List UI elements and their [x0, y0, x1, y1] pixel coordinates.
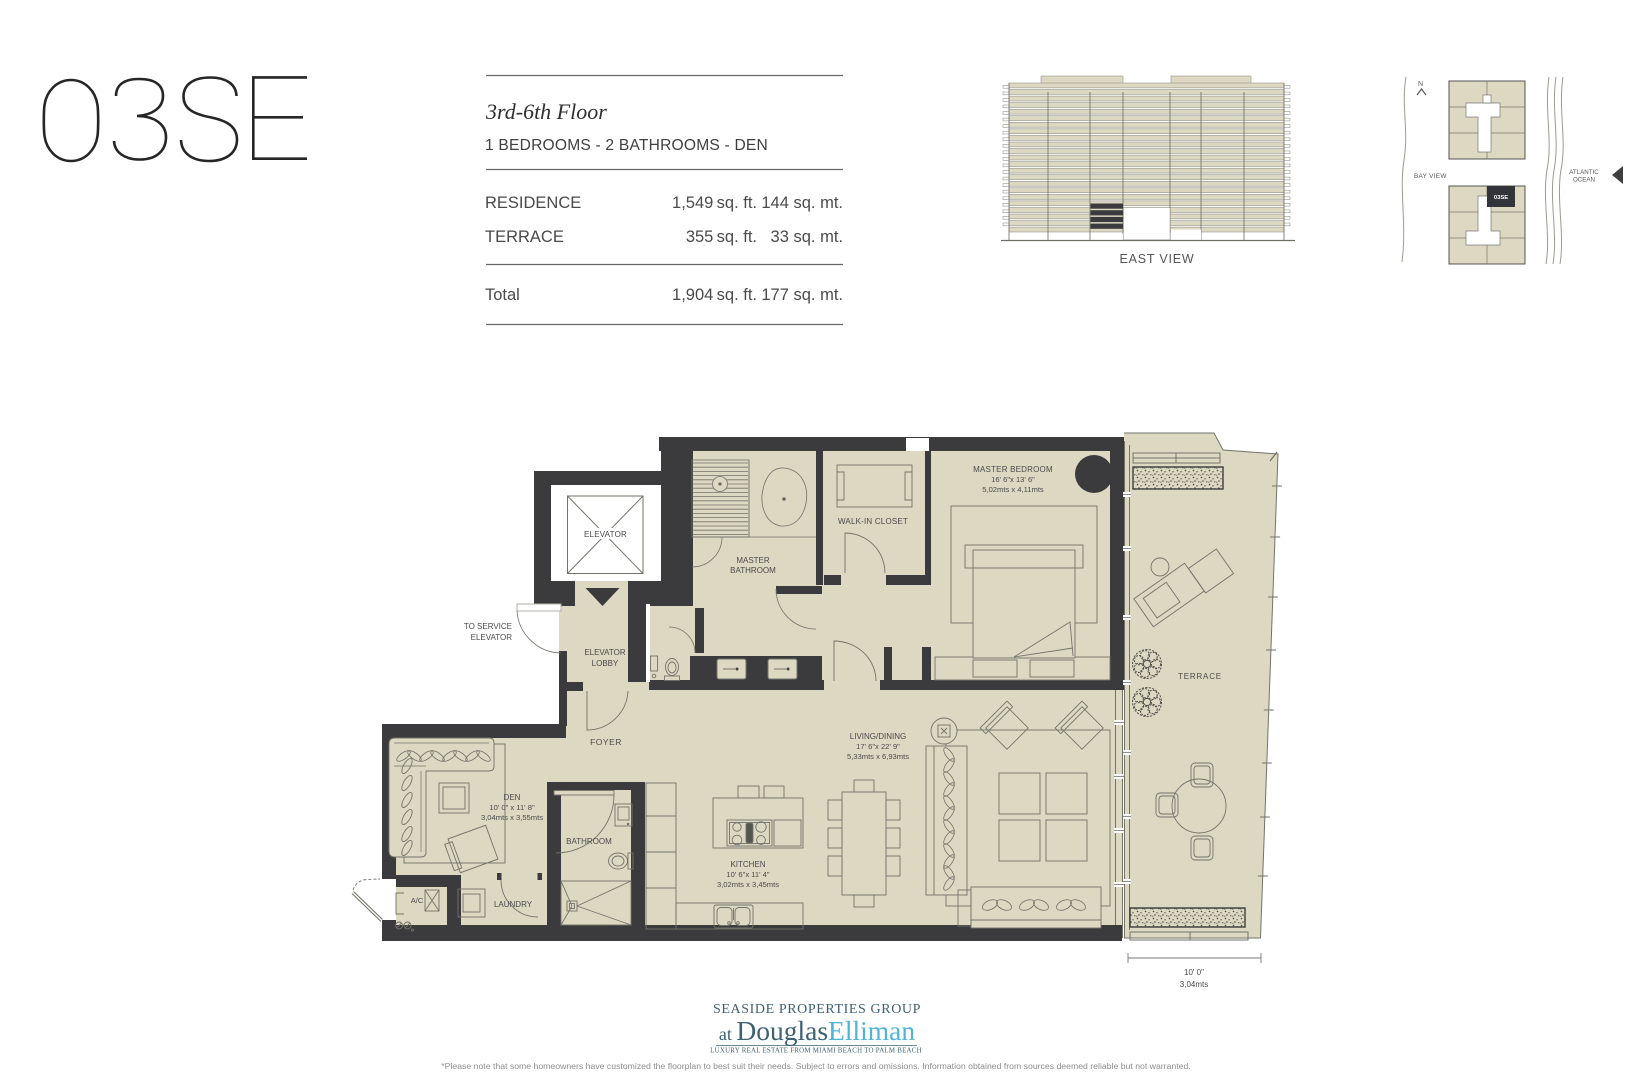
svg-text:10' 0": 10' 0" [1184, 968, 1204, 977]
svg-text:LAUNDRY: LAUNDRY [494, 900, 533, 909]
svg-text:TERRACE: TERRACE [485, 228, 564, 246]
svg-text:1,904 sq. ft.: 1,904 sq. ft. [672, 286, 757, 304]
svg-text:LIVING/DINING: LIVING/DINING [850, 732, 906, 741]
svg-text:BAY VIEW: BAY VIEW [1414, 173, 1447, 180]
svg-text:177 sq. mt.: 177 sq. mt. [761, 286, 843, 304]
svg-text:10' 6"x 11' 4": 10' 6"x 11' 4" [726, 870, 769, 879]
svg-text:17' 6"x 22' 9": 17' 6"x 22' 9" [856, 742, 900, 751]
svg-text:144 sq. mt.: 144 sq. mt. [761, 194, 843, 212]
svg-text:BATHROOM: BATHROOM [730, 566, 776, 575]
svg-text:A/C: A/C [411, 896, 424, 905]
svg-text:5,33mts x 6,93mts: 5,33mts x 6,93mts [847, 752, 909, 761]
svg-text:WALK-IN CLOSET: WALK-IN CLOSET [838, 517, 908, 526]
svg-text:3,04mts x 3,55mts: 3,04mts x 3,55mts [481, 813, 543, 822]
svg-text:FOYER: FOYER [590, 737, 622, 747]
svg-text:MASTER: MASTER [736, 556, 770, 565]
svg-text:ATLANTIC: ATLANTIC [1569, 169, 1599, 176]
svg-text:DEN: DEN [504, 793, 521, 802]
svg-text:MASTER BEDROOM: MASTER BEDROOM [973, 465, 1053, 474]
svg-text:03SE: 03SE [1494, 195, 1508, 201]
svg-text:33 sq. mt.: 33 sq. mt. [771, 228, 843, 246]
svg-text:3rd-6th Floor: 3rd-6th Floor [485, 99, 607, 124]
svg-text:TO SERVICE: TO SERVICE [464, 622, 512, 631]
svg-text:ELEVATOR: ELEVATOR [584, 648, 626, 657]
svg-text:16' 6"x 13' 6": 16' 6"x 13' 6" [991, 475, 1035, 484]
svg-text:LOBBY: LOBBY [592, 659, 619, 668]
svg-text:3,02mts x 3,45mts: 3,02mts x 3,45mts [717, 880, 779, 889]
svg-text:N: N [1418, 81, 1423, 88]
svg-text:TERRACE: TERRACE [1178, 672, 1222, 681]
svg-text:5,02mts x 4,11mts: 5,02mts x 4,11mts [982, 485, 1044, 494]
svg-text:ELEVATOR: ELEVATOR [584, 530, 627, 539]
svg-text:355 sq. ft.: 355 sq. ft. [686, 228, 757, 246]
svg-text:1,549 sq. ft.: 1,549 sq. ft. [672, 194, 757, 212]
svg-text:Total: Total [485, 286, 520, 304]
svg-text:ELEVATOR: ELEVATOR [471, 633, 513, 642]
svg-text:RESIDENCE: RESIDENCE [485, 194, 581, 212]
svg-text:at DouglasElliman: at DouglasElliman [719, 1015, 915, 1046]
svg-text:LUXURY REAL ESTATE FROM MIAMI: LUXURY REAL ESTATE FROM MIAMI BEACH TO P… [710, 1048, 922, 1055]
svg-text:*Please note that some homeown: *Please note that some homeowners have c… [441, 1061, 1190, 1071]
svg-text:EAST VIEW: EAST VIEW [1119, 252, 1194, 266]
svg-text:BATHROOM: BATHROOM [566, 837, 612, 846]
svg-text:OCEAN: OCEAN [1573, 177, 1595, 184]
svg-text:1 BEDROOMS - 2 BATHROOMS - DEN: 1 BEDROOMS - 2 BATHROOMS - DEN [485, 137, 768, 154]
svg-text:KITCHEN: KITCHEN [730, 860, 765, 869]
svg-text:3,04mts: 3,04mts [1180, 980, 1208, 989]
svg-text:10' 0" x 11' 8": 10' 0" x 11' 8" [489, 803, 535, 812]
